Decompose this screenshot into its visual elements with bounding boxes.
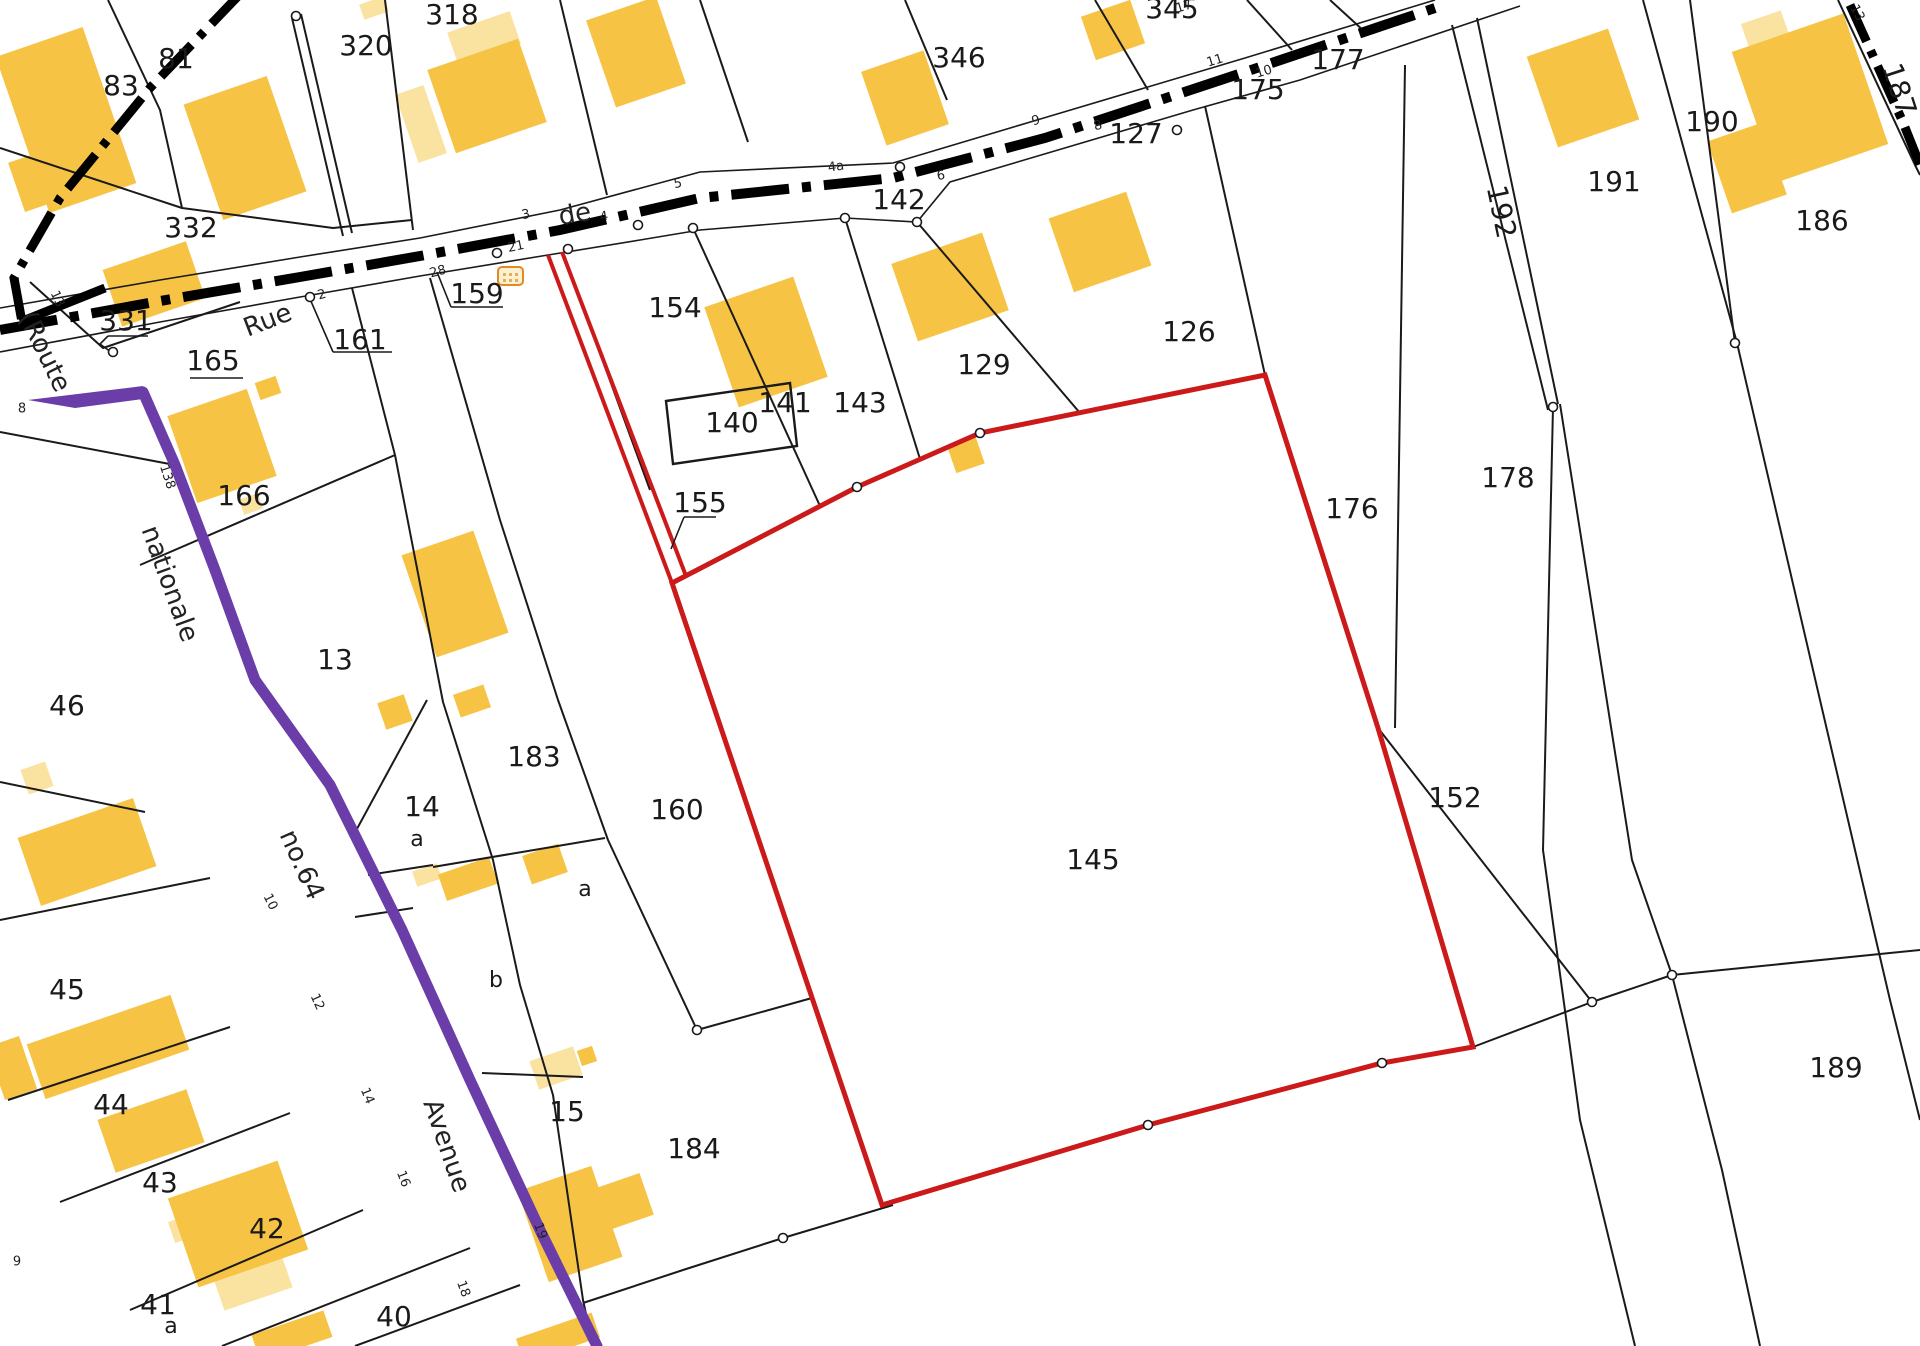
parcel-label-44: 44 bbox=[93, 1088, 129, 1121]
building bbox=[184, 76, 307, 220]
boundary-vertex bbox=[1144, 1121, 1153, 1130]
parcel-label-331: 331 bbox=[99, 304, 152, 337]
parcel-label-177: 177 bbox=[1311, 43, 1364, 76]
house-number-9: 9 bbox=[13, 1255, 21, 1270]
parcel-label-142: 142 bbox=[872, 183, 925, 216]
parcel-label-13: 13 bbox=[317, 643, 353, 676]
boundary-vertex bbox=[1378, 1059, 1387, 1068]
subparcel-letter-a: a bbox=[164, 1314, 177, 1339]
house-number-28: 28 bbox=[428, 263, 448, 282]
boundary-vertex bbox=[493, 249, 502, 258]
subparcel-letter-a: a bbox=[578, 877, 591, 902]
street-label-avenue: Avenue bbox=[417, 1095, 477, 1196]
parcel-label-141: 141 bbox=[758, 386, 811, 419]
parcel-label-320: 320 bbox=[339, 29, 392, 62]
building bbox=[377, 694, 413, 730]
boundary-vertex bbox=[853, 483, 862, 492]
boundary-vertex bbox=[306, 293, 315, 302]
subparcel-letter-a: a bbox=[410, 827, 423, 852]
street-label-de: de bbox=[556, 197, 593, 232]
building bbox=[586, 0, 686, 108]
boundary-vertex bbox=[1549, 403, 1558, 412]
parcel-boundary bbox=[352, 288, 395, 455]
boundary-vertex bbox=[1668, 971, 1677, 980]
parcel-label-45: 45 bbox=[49, 973, 85, 1006]
parcel-label-43: 43 bbox=[142, 1166, 178, 1199]
map-annotation-icon-dot bbox=[515, 273, 518, 276]
parcel-label-191: 191 bbox=[1587, 165, 1640, 198]
parcel-boundary bbox=[0, 432, 175, 465]
parcel-boundary bbox=[292, 18, 343, 236]
parcel-label-154: 154 bbox=[648, 291, 701, 324]
street-label-rue: Rue bbox=[239, 298, 296, 344]
parcel-label-83: 83 bbox=[103, 69, 139, 102]
building bbox=[453, 684, 491, 717]
house-number-12: 12 bbox=[307, 991, 327, 1012]
building bbox=[522, 844, 568, 885]
boundary-vertex bbox=[779, 1234, 788, 1243]
parcel-label-176: 176 bbox=[1325, 492, 1378, 525]
parcel-label-187: 187 bbox=[1875, 59, 1920, 120]
parcel-label-190: 190 bbox=[1685, 105, 1738, 138]
parcel-boundary bbox=[1247, 0, 1292, 50]
house-number-6: 6 bbox=[936, 168, 946, 184]
boundary-vertex bbox=[1173, 126, 1182, 135]
parcel-label-161: 161 bbox=[333, 323, 386, 356]
parcel-label-186: 186 bbox=[1795, 204, 1848, 237]
parcel-label-160: 160 bbox=[650, 793, 703, 826]
boundary-vertex bbox=[1588, 998, 1597, 1007]
boundary-vertex bbox=[913, 218, 922, 227]
parcel-label-46: 46 bbox=[49, 689, 85, 722]
parcel-boundary bbox=[1473, 950, 1920, 1047]
map-annotation-icon-dot bbox=[509, 279, 512, 282]
house-number-2: 2 bbox=[316, 287, 328, 304]
house-number-21: 21 bbox=[506, 238, 525, 256]
parcel-label-183: 183 bbox=[507, 740, 560, 773]
parcel-label-81: 81 bbox=[158, 42, 194, 75]
cadastral-map-canvas[interactable]: 8381318320332331165161159166134618314160… bbox=[0, 0, 1920, 1346]
building bbox=[255, 376, 282, 400]
boundary-vertex bbox=[292, 12, 301, 21]
building-annex bbox=[529, 1046, 582, 1089]
building bbox=[252, 1310, 333, 1346]
parcel-label-129: 129 bbox=[957, 348, 1010, 381]
house-number-18: 18 bbox=[453, 1279, 473, 1300]
building bbox=[577, 1046, 597, 1066]
parcel-label-15: 15 bbox=[549, 1095, 585, 1128]
building bbox=[27, 995, 190, 1099]
parcel-boundary bbox=[0, 782, 145, 812]
parcel-label-145: 145 bbox=[1066, 843, 1119, 876]
building bbox=[168, 1161, 308, 1288]
house-number-9: 9 bbox=[1030, 113, 1042, 130]
building bbox=[1527, 29, 1640, 148]
parcel-label-40: 40 bbox=[376, 1300, 412, 1333]
boundary-vertex bbox=[896, 163, 905, 172]
parcel-boundary bbox=[430, 278, 697, 1030]
parcel-label-14: 14 bbox=[404, 790, 440, 823]
parcel-label-332: 332 bbox=[164, 211, 217, 244]
parcel-label-143: 143 bbox=[833, 386, 886, 419]
parcel-boundary bbox=[697, 998, 812, 1030]
building bbox=[1049, 192, 1152, 292]
parcel-boundary bbox=[1378, 728, 1592, 1002]
boundary-vertex bbox=[564, 245, 573, 254]
parcel-label-189: 189 bbox=[1809, 1051, 1862, 1084]
street-label-no64: no.64 bbox=[273, 825, 330, 904]
street-label-nationale: nationale bbox=[135, 522, 205, 646]
map-annotation-icon-dot bbox=[515, 279, 518, 282]
parcel-label-126: 126 bbox=[1162, 315, 1215, 348]
parcel-label-184: 184 bbox=[667, 1132, 720, 1165]
house-number-4a: 4a bbox=[827, 158, 845, 175]
house-number-5: 5 bbox=[673, 176, 684, 192]
parcel-label-155: 155 bbox=[673, 486, 726, 519]
subparcel-letter-b: b bbox=[489, 968, 503, 993]
parcel-label-159: 159 bbox=[450, 277, 503, 310]
parcel-boundary bbox=[700, 0, 748, 142]
boundary-vertex bbox=[1731, 339, 1740, 348]
parcel-boundary bbox=[1737, 343, 1920, 1120]
building bbox=[438, 857, 498, 901]
parcel-boundary bbox=[433, 838, 605, 867]
parcel-boundary bbox=[845, 218, 920, 459]
parcel-label-42: 42 bbox=[249, 1212, 285, 1245]
house-number-11: 11 bbox=[1205, 51, 1225, 70]
street-label-route: (Route bbox=[12, 307, 76, 397]
parcel-label-192: 192 bbox=[1480, 182, 1523, 241]
parcel-label-318: 318 bbox=[425, 0, 478, 31]
parcel-boundary bbox=[1560, 404, 1760, 1346]
boundary-vertex bbox=[841, 214, 850, 223]
parcel-label-127: 127 bbox=[1109, 117, 1162, 150]
house-number-4: 4 bbox=[599, 209, 610, 225]
avenue-start-wedge bbox=[28, 386, 143, 408]
parcel-label-178: 178 bbox=[1481, 461, 1534, 494]
building bbox=[401, 531, 508, 658]
house-number-14: 14 bbox=[357, 1086, 377, 1107]
boundary-vertex bbox=[693, 1026, 702, 1035]
parcel-label-152: 152 bbox=[1428, 781, 1481, 814]
label-leader bbox=[671, 517, 684, 549]
house-number-16: 16 bbox=[393, 1169, 413, 1190]
parcel-label-166: 166 bbox=[217, 479, 270, 512]
building bbox=[427, 39, 546, 153]
cadastral-map-svg[interactable]: 8381318320332331165161159166134618314160… bbox=[0, 0, 1920, 1346]
parcel-label-165: 165 bbox=[186, 344, 239, 377]
boundary-vertex bbox=[634, 221, 643, 230]
house-number-10: 10 bbox=[260, 891, 281, 912]
house-number-8: 8 bbox=[18, 402, 26, 417]
map-annotation-icon-dot bbox=[503, 273, 506, 276]
building bbox=[18, 798, 157, 906]
parcel-label-140: 140 bbox=[705, 406, 758, 439]
parcel-boundary bbox=[0, 878, 210, 920]
boundary-vertex bbox=[689, 224, 698, 233]
parcel-boundary bbox=[355, 908, 413, 917]
building bbox=[891, 233, 1008, 342]
parcel-boundary bbox=[1395, 65, 1405, 728]
parcel-boundary bbox=[1543, 407, 1635, 1346]
boundary-vertex bbox=[976, 429, 985, 438]
parcel-label-346: 346 bbox=[932, 41, 985, 74]
label-leader bbox=[310, 299, 333, 352]
house-number-3: 3 bbox=[520, 207, 531, 223]
boundary-vertex bbox=[109, 348, 118, 357]
map-annotation-icon-dot bbox=[509, 273, 512, 276]
